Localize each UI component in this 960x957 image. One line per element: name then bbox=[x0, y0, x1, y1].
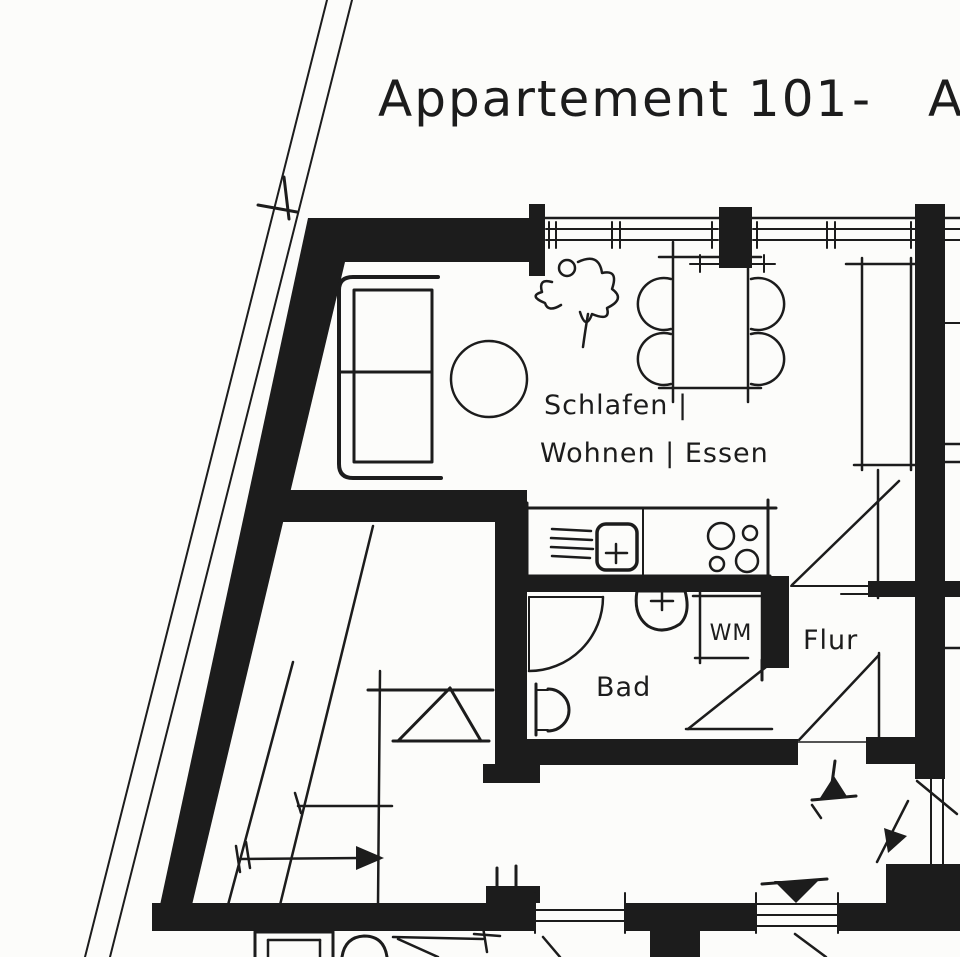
hall-to-corridor-door bbox=[798, 653, 879, 742]
glyph-line bbox=[450, 688, 481, 741]
plant-leaf bbox=[559, 260, 575, 276]
corner-shower bbox=[529, 597, 603, 671]
lower-floor-fragments bbox=[255, 927, 826, 957]
bottom-wall-pier bbox=[650, 929, 700, 957]
survey-tick bbox=[258, 205, 297, 212]
wardrobe bbox=[846, 258, 918, 470]
chair bbox=[638, 278, 671, 330]
arrow-line bbox=[812, 796, 856, 800]
title-suffix: A bbox=[928, 70, 960, 128]
kitchenette bbox=[521, 500, 776, 585]
walls bbox=[152, 204, 960, 957]
stove-burner bbox=[743, 526, 757, 540]
entry-arrow bbox=[877, 801, 908, 862]
window-jamb-block bbox=[529, 204, 545, 276]
room-label-living-2: Wohnen | Essen bbox=[540, 438, 769, 469]
right-wall-opening bbox=[917, 779, 957, 864]
room-label-bath: Bad bbox=[596, 672, 651, 703]
hall-top-wall-stub bbox=[868, 581, 917, 597]
room-label-hall: Flur bbox=[803, 625, 858, 656]
fixture-arc bbox=[342, 936, 387, 957]
top-exterior-wall bbox=[308, 218, 540, 262]
entry-arrow bbox=[762, 879, 827, 903]
chair bbox=[638, 333, 671, 385]
fragment-tick bbox=[474, 934, 500, 936]
bottom-wall-pier bbox=[486, 886, 540, 931]
chair bbox=[751, 278, 784, 330]
floor-plan-canvas: Appartement 101-A bbox=[0, 0, 960, 957]
entry-arrow bbox=[812, 761, 856, 818]
sofa-seat bbox=[354, 290, 432, 462]
bathroom-door bbox=[686, 660, 772, 729]
arrow-tick bbox=[812, 805, 821, 818]
survey-tick bbox=[284, 177, 289, 219]
plan-title: Appartement 101-A bbox=[378, 70, 960, 128]
stove-burner bbox=[710, 557, 724, 571]
dimension-tick bbox=[295, 793, 301, 813]
drainboard-line bbox=[551, 538, 592, 540]
toilet-bowl bbox=[548, 689, 569, 731]
stove-burner bbox=[736, 550, 758, 572]
toilet bbox=[536, 684, 569, 735]
drainboard-line bbox=[552, 556, 590, 558]
door-swing-line bbox=[792, 481, 899, 585]
diagonal-exterior-wall bbox=[160, 218, 345, 905]
neighbor-wall-stub bbox=[945, 581, 960, 597]
direction-arrow bbox=[236, 842, 384, 872]
drainboard-line bbox=[552, 529, 591, 531]
fragment-line bbox=[795, 934, 826, 957]
wm-label: WM bbox=[710, 621, 753, 646]
bath-right-wall bbox=[761, 576, 789, 668]
stove-burner bbox=[708, 523, 734, 549]
arrowhead bbox=[774, 881, 818, 903]
drainboard-line bbox=[551, 547, 593, 549]
title-dash: - bbox=[852, 70, 872, 128]
door-swing-line bbox=[917, 781, 957, 814]
door-leaf bbox=[688, 667, 766, 729]
fragment-line bbox=[393, 937, 483, 939]
hall: Flur bbox=[791, 470, 899, 742]
glyph-line bbox=[398, 688, 450, 741]
room-label-living-1: Schlafen | bbox=[544, 390, 688, 421]
right-wall-upper bbox=[915, 204, 945, 779]
bottom-right-wall-block bbox=[886, 864, 960, 931]
guide-line bbox=[378, 671, 380, 905]
door-opening bbox=[756, 905, 838, 931]
plant-leaf bbox=[578, 259, 618, 322]
facade-line bbox=[110, 0, 352, 957]
dining-set bbox=[638, 242, 784, 402]
washing-machine: WM bbox=[693, 589, 766, 663]
interior-wall-vertical bbox=[495, 490, 527, 768]
hall-bottom-wall-stub bbox=[866, 737, 917, 764]
facade-diagonal-lines bbox=[85, 0, 352, 957]
living-to-hall-door bbox=[792, 470, 899, 598]
door-swing-line bbox=[799, 655, 879, 740]
arrowhead bbox=[356, 846, 384, 870]
door-opening bbox=[535, 903, 625, 931]
round-table bbox=[451, 341, 527, 417]
bathroom: WM Bad bbox=[529, 589, 772, 735]
fragment-line bbox=[543, 937, 560, 957]
interior-wall-horizontal bbox=[262, 490, 523, 522]
arrowhead bbox=[884, 828, 907, 853]
chair bbox=[751, 333, 784, 385]
title-main: Appartement 101 bbox=[378, 70, 849, 128]
bath-bottom-wall bbox=[515, 739, 798, 765]
arrow-line bbox=[240, 858, 362, 859]
potted-plant bbox=[536, 259, 618, 347]
arrow-tick bbox=[246, 842, 250, 868]
page-title: Appartement 101-A bbox=[378, 70, 960, 128]
fragment-line bbox=[398, 939, 438, 957]
living-room: Schlafen | Wohnen | Essen bbox=[339, 242, 918, 478]
neighbor-fragments bbox=[945, 323, 960, 648]
plant-leaf bbox=[536, 281, 561, 308]
wall-foot-pier bbox=[483, 764, 540, 783]
lower-left-room bbox=[228, 526, 516, 905]
